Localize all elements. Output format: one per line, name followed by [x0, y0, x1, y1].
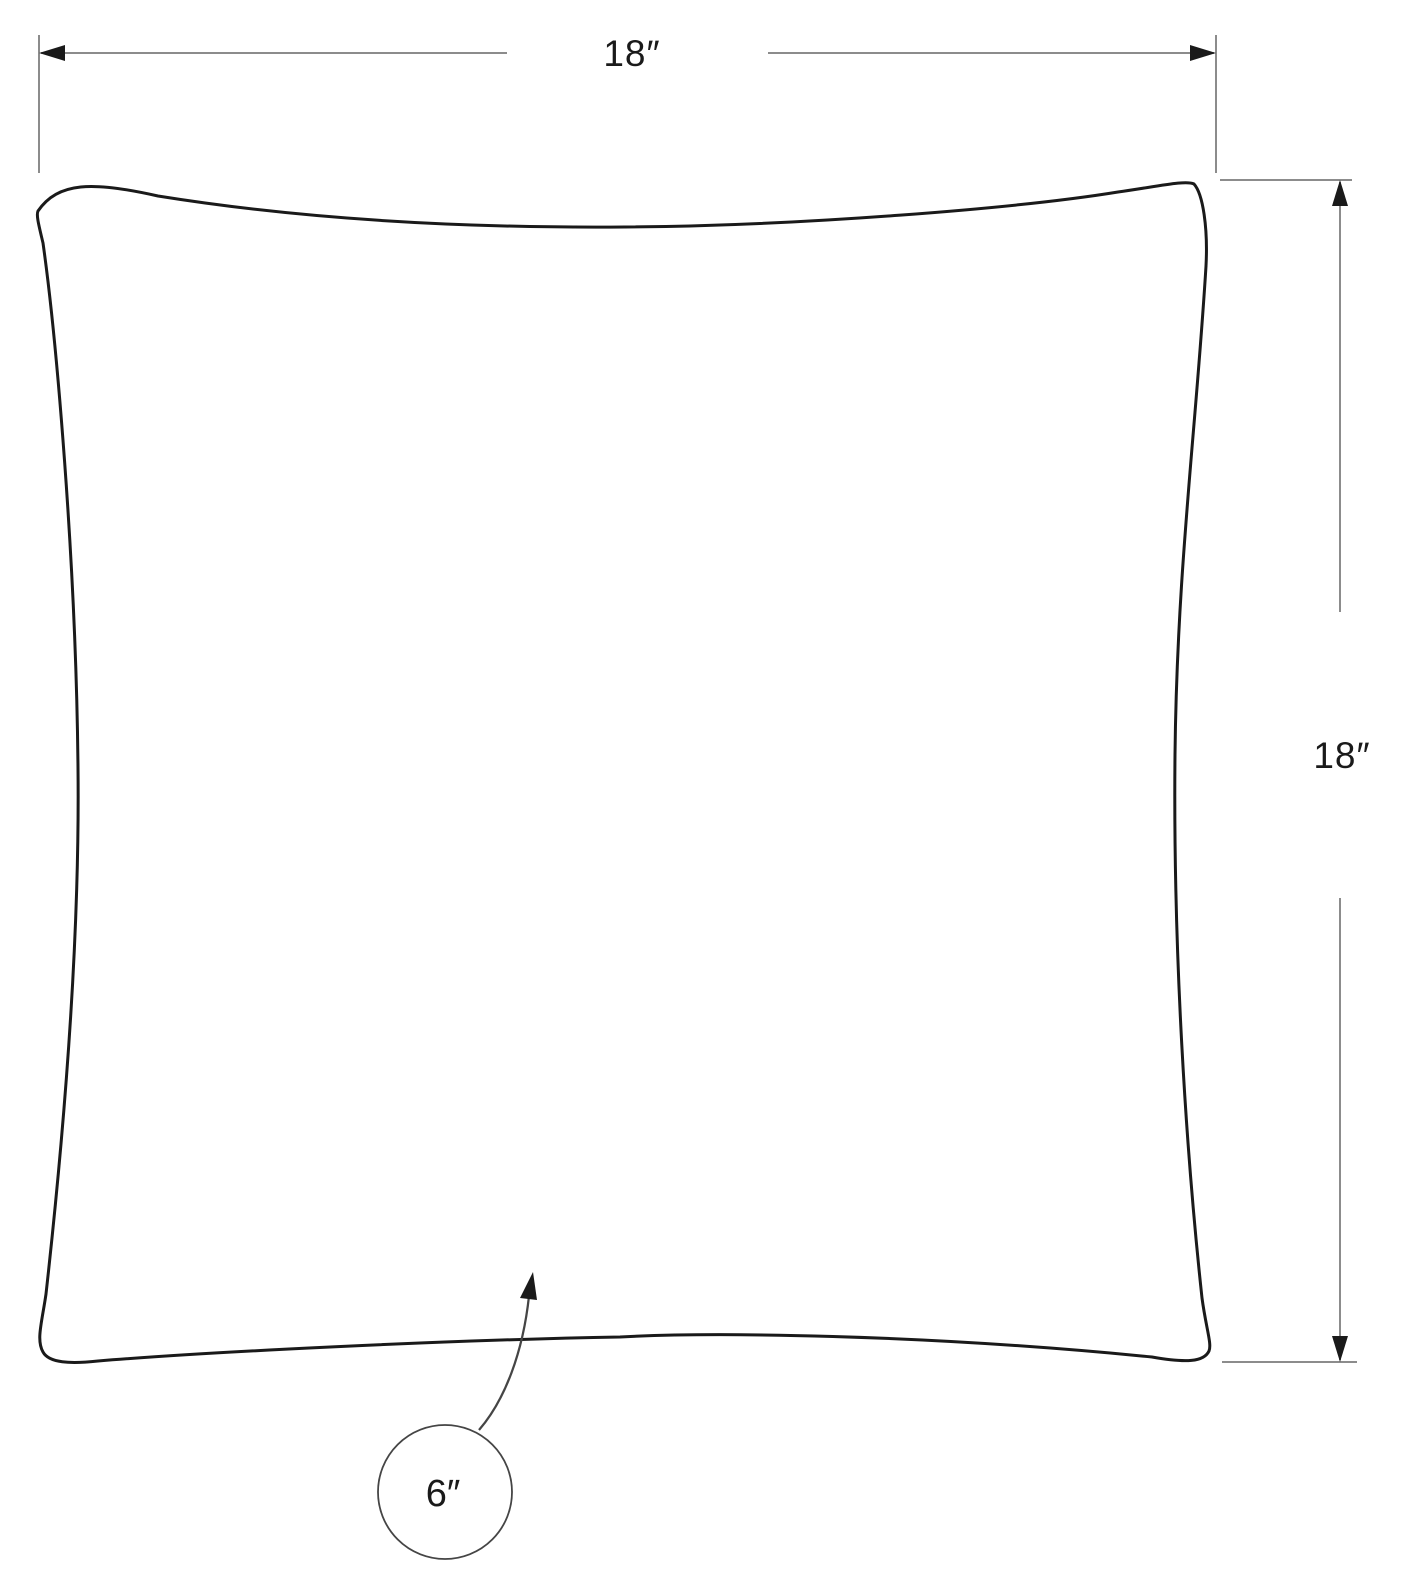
thickness-dimension-label: 6″: [426, 1473, 461, 1515]
pillow-outline: [37, 183, 1209, 1363]
arrow-up-icon: [1332, 180, 1348, 206]
arrow-left-icon: [39, 45, 65, 61]
height-dimension-label: 18″: [1313, 735, 1370, 776]
width-dimension-label: 18″: [603, 33, 660, 74]
arrow-right-icon: [1190, 45, 1216, 61]
diagram-svg: 18″ 18″ 6″: [0, 0, 1404, 1592]
callout-leader-line: [479, 1296, 529, 1430]
arrow-down-icon: [1332, 1336, 1348, 1362]
callout-arrow-icon: [520, 1272, 537, 1300]
pillow-dimension-diagram: 18″ 18″ 6″: [0, 0, 1404, 1592]
